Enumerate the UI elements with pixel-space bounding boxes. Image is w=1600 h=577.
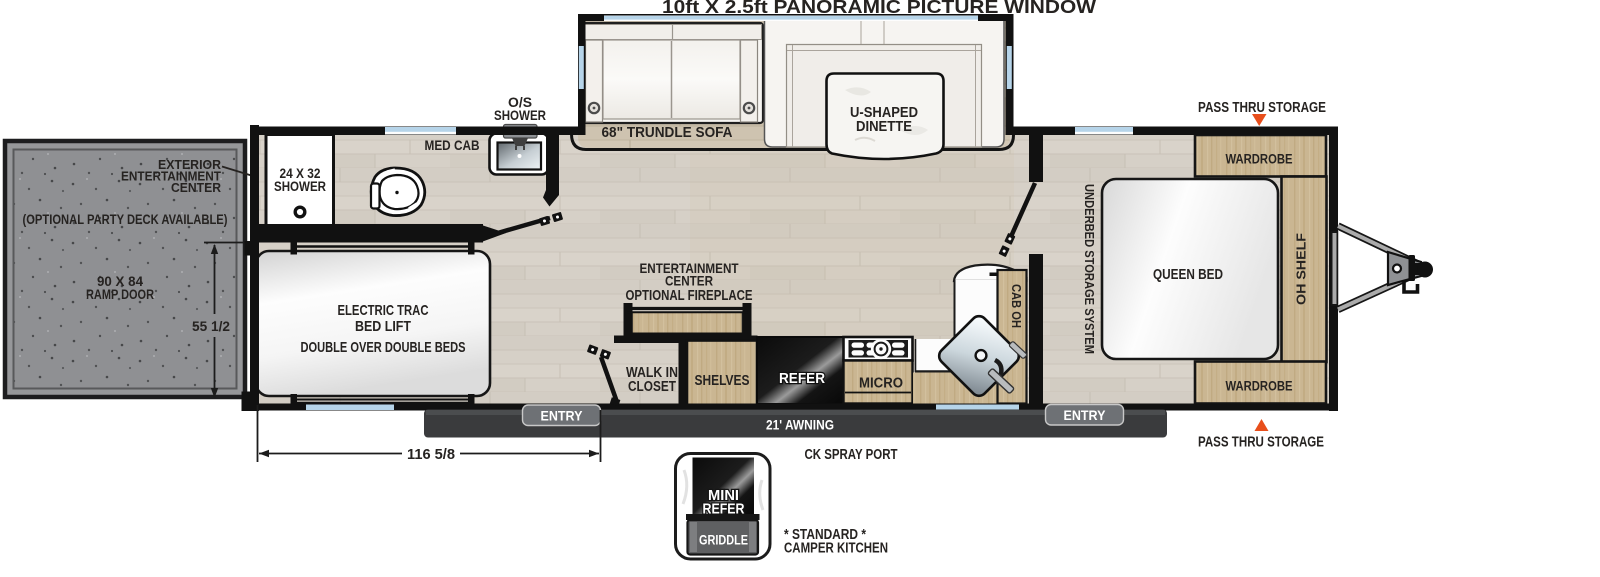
svg-text:CENTER: CENTER	[665, 273, 713, 289]
svg-text:MICRO: MICRO	[859, 376, 903, 392]
svg-text:CAB OH: CAB OH	[1009, 284, 1023, 328]
svg-text:DINETTE: DINETTE	[856, 118, 912, 135]
svg-text:MED CAB: MED CAB	[425, 137, 480, 153]
svg-text:55 1/2: 55 1/2	[192, 319, 230, 334]
svg-text:21' AWNING: 21' AWNING	[766, 417, 834, 433]
svg-text:(OPTIONAL PARTY DECK AVAILABLE: (OPTIONAL PARTY DECK AVAILABLE)	[23, 212, 228, 227]
svg-text:REFER: REFER	[779, 370, 825, 387]
svg-text:DOUBLE OVER DOUBLE BEDS: DOUBLE OVER DOUBLE BEDS	[301, 339, 466, 356]
svg-text:68" TRUNDLE SOFA: 68" TRUNDLE SOFA	[602, 124, 733, 141]
svg-text:QUEEN BED: QUEEN BED	[1153, 267, 1223, 283]
svg-text:CENTER: CENTER	[171, 180, 222, 195]
svg-text:ELECTRIC TRAC: ELECTRIC TRAC	[338, 302, 429, 319]
svg-text:10ft X 2.5ft PANORAMIC PICTURE: 10ft X 2.5ft PANORAMIC PICTURE WINDOW	[662, 0, 1096, 17]
svg-text:116 5/8: 116 5/8	[407, 447, 455, 463]
svg-text:SHELVES: SHELVES	[695, 373, 750, 389]
svg-text:ENTRY: ENTRY	[1064, 407, 1107, 423]
svg-text:CAMPER KITCHEN: CAMPER KITCHEN	[784, 541, 888, 557]
svg-text:WARDROBE: WARDROBE	[1226, 379, 1293, 394]
svg-text:BED LIFT: BED LIFT	[355, 318, 411, 335]
svg-text:ENTRY: ENTRY	[541, 408, 584, 424]
svg-text:GRIDDLE: GRIDDLE	[699, 533, 748, 548]
svg-text:PASS THRU STORAGE: PASS THRU STORAGE	[1198, 100, 1326, 116]
svg-text:CLOSET: CLOSET	[628, 379, 676, 395]
svg-text:REFER: REFER	[703, 502, 745, 518]
svg-text:PASS THRU STORAGE: PASS THRU STORAGE	[1198, 435, 1324, 451]
svg-text:OH SHELF: OH SHELF	[1294, 233, 1309, 305]
svg-text:UNDERBED STORAGE SYSTEM: UNDERBED STORAGE SYSTEM	[1082, 184, 1096, 354]
svg-text:SHOWER: SHOWER	[274, 179, 326, 194]
svg-text:WARDROBE: WARDROBE	[1226, 152, 1293, 167]
svg-text:OPTIONAL FIREPLACE: OPTIONAL FIREPLACE	[626, 288, 753, 304]
svg-text:SHOWER: SHOWER	[494, 107, 546, 123]
svg-text:CK SPRAY PORT: CK SPRAY PORT	[805, 447, 898, 463]
svg-text:RAMP DOOR: RAMP DOOR	[86, 287, 154, 302]
